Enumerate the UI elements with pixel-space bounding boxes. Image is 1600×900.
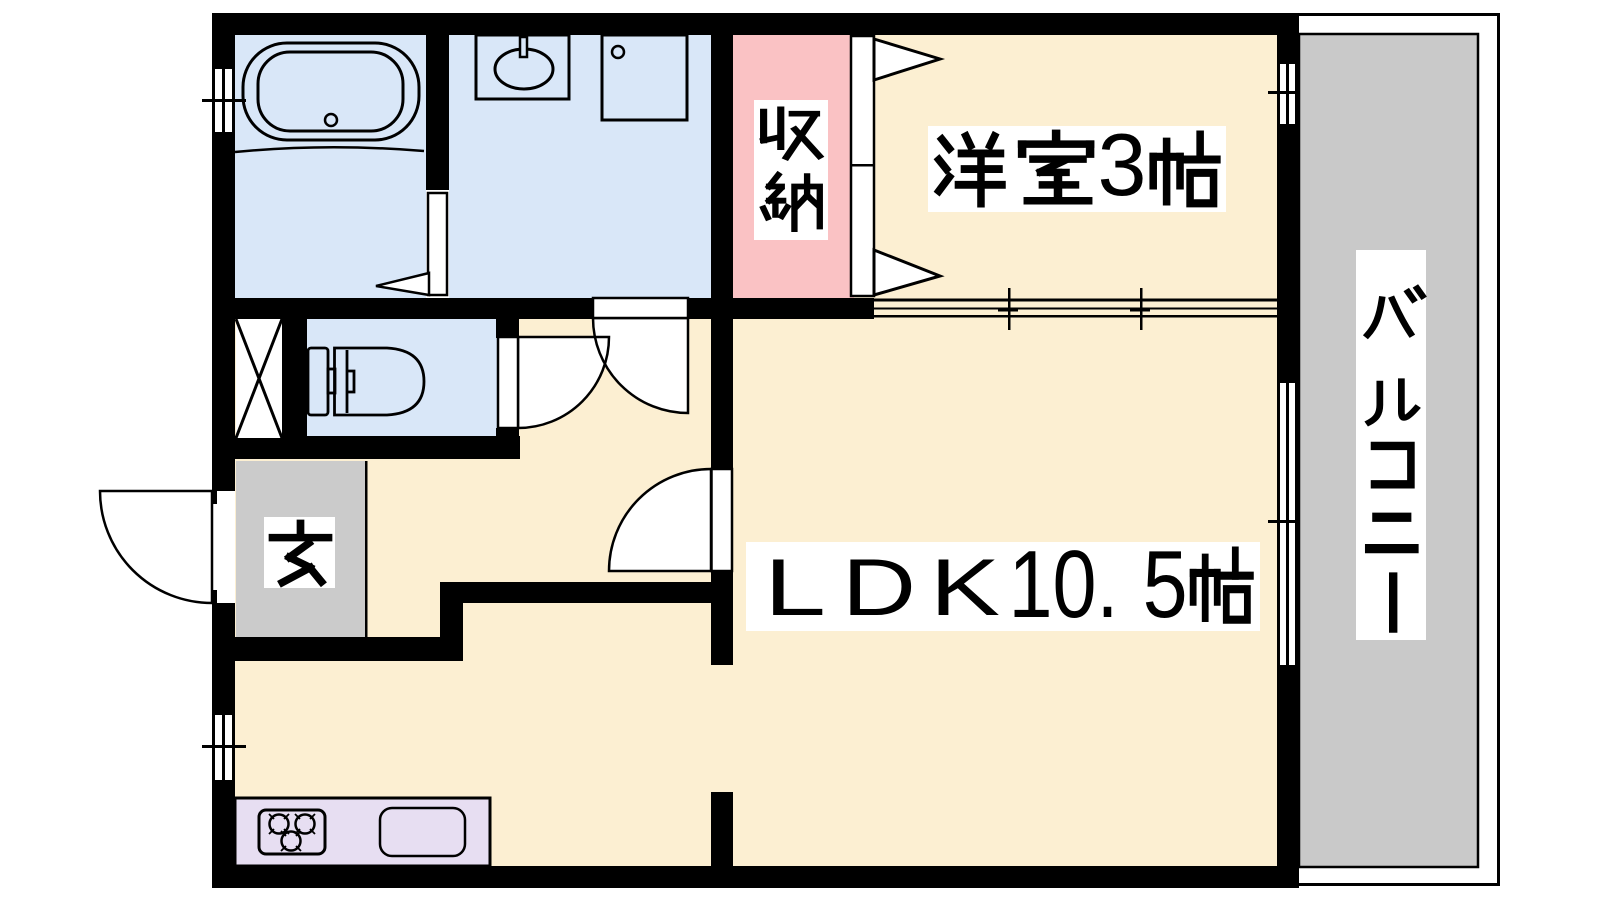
svg-text:5: 5 [1143,531,1188,638]
svg-text:10.: 10. [1009,531,1119,638]
svg-text:D: D [842,543,916,633]
svg-text:3: 3 [1098,115,1147,214]
svg-text:L: L [764,543,826,633]
svg-text:K: K [930,543,1000,633]
